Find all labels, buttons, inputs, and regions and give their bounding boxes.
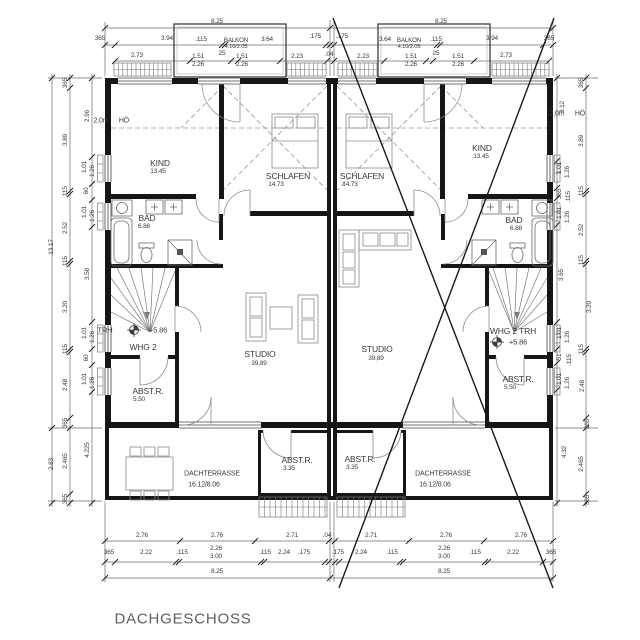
room-label-abstr-left: ABST.R. <box>132 387 163 396</box>
dim-label: 1.01 <box>557 207 564 219</box>
dim-label: 3.64 <box>379 37 391 44</box>
dim-label: .175 <box>298 550 310 557</box>
dim-label: 2.22 <box>507 550 519 557</box>
room-label-terrace-left: DACHTERRASSE <box>184 471 240 478</box>
dim-label: 3.89 <box>63 134 70 146</box>
room-area-studio-left: 39,89 <box>251 361 267 368</box>
height-line-label-left-2: HÖ <box>119 118 129 125</box>
room-label-terrace-abstr-left: ABST.R. <box>281 456 312 465</box>
dim-label: .175 <box>336 34 348 41</box>
dim-label: 2.26 <box>405 62 417 69</box>
dim-label: 365 <box>63 78 70 88</box>
room-label-studio-left: STUDIO <box>244 350 275 359</box>
dim-label: 51 <box>557 354 564 361</box>
dim-label: .115 <box>259 550 271 557</box>
dim-label: 1.26 <box>565 166 572 178</box>
dim-label: 1.01 <box>557 162 564 174</box>
dim-label: .115 <box>579 255 586 267</box>
bath-fixtures-left <box>111 200 192 266</box>
dim-label: 1.01 <box>82 327 89 339</box>
dim-label: 2.83 <box>49 458 56 470</box>
dim-label: 365 <box>585 495 592 505</box>
dim-label: 25 <box>433 51 440 58</box>
dim-label: 2.465 <box>63 453 70 469</box>
dim-label: .115 <box>63 256 70 268</box>
dim-label: 1.26 <box>90 331 97 343</box>
dim-label: .115 <box>566 191 573 203</box>
dim-label: .115 <box>176 550 188 557</box>
dim-label: 2.26 <box>438 546 450 553</box>
level-value-left: +5.86 <box>149 326 167 334</box>
level-marks <box>127 323 504 349</box>
dim-label: 2.48 <box>580 380 587 392</box>
dim-label: 2.73 <box>131 53 143 60</box>
door-swings <box>140 84 524 458</box>
dim-label: 2.24 <box>355 550 367 557</box>
apartment-label-right: WHG 2 TRH <box>490 327 536 336</box>
dim-label: 365 <box>544 36 554 43</box>
dim-label: 3.00 <box>438 554 450 561</box>
room-area-terrace-abstr-right: 3.35 <box>346 465 358 472</box>
dim-label: 1.26 <box>565 331 572 343</box>
floor-plan-drawing <box>0 0 640 640</box>
dim-label: .115 <box>195 37 207 44</box>
dim-label: .115 <box>430 37 442 44</box>
room-area-bad-left: 6.88 <box>138 224 150 231</box>
dim-label: 13.17 <box>49 239 56 255</box>
dim-label: 8.25 <box>211 569 223 576</box>
room-area-schlafen-left: 14.73 <box>268 182 284 189</box>
room-label-kind-right: KIND <box>472 144 492 153</box>
dim-label: 365 <box>63 494 70 504</box>
dim-label: 1.26 <box>565 211 572 223</box>
room-area-abstr-right: 5.50 <box>504 385 516 392</box>
dim-label: 3.89 <box>579 135 586 147</box>
room-label-terrace-right: DACHTERRASSE <box>415 471 471 478</box>
dim-label: .115 <box>63 344 70 356</box>
room-area-schlafen-right: 14.73 <box>342 182 358 189</box>
dim-label: 3.58 <box>85 268 92 280</box>
dim-label: 365 <box>95 36 105 43</box>
height-line-label-left: 2.0m <box>94 118 109 125</box>
dim-label: 3.94 <box>486 36 498 43</box>
room-label-kind-left: KIND <box>150 159 170 168</box>
level-value-right: +5.86 <box>509 338 527 346</box>
dim-label: .115 <box>579 344 586 356</box>
dim-label: .115 <box>386 550 398 557</box>
dim-label: 2.465 <box>579 456 586 472</box>
dim-label: 2.22 <box>140 550 152 557</box>
dim-label: 2.76 <box>211 533 223 540</box>
room-area-abstr-left: 5.50 <box>133 397 145 404</box>
dim-label: 1.01 <box>557 327 564 339</box>
dim-label: 2.76 <box>515 533 527 540</box>
dim-label: 2.76 <box>440 533 452 540</box>
dim-label: .04 <box>325 52 334 59</box>
dim-label: 1.51 <box>452 54 464 61</box>
dim-label: 1.01 <box>82 206 89 218</box>
apartment-label-left: WHG 2 <box>129 343 156 352</box>
dim-label: 60 <box>84 188 91 195</box>
room-area-kind-right: 13.45 <box>473 154 489 161</box>
room-label-bad-right: BAD <box>505 216 522 225</box>
bath-fixtures-right <box>472 200 553 266</box>
dim-label: 2.23 <box>291 54 303 61</box>
dim-label: 1.01 <box>557 373 564 385</box>
drawing-title: DACHGESCHOSS <box>114 611 251 628</box>
dim-label: 3.64 <box>261 37 273 44</box>
dim-label: 365 <box>546 550 556 557</box>
dim-label: 2.96 <box>85 110 92 122</box>
room-area-studio-right: 39,89 <box>368 356 384 363</box>
dim-label: 1.26 <box>565 377 572 389</box>
room-label-abstr-right: ABST.R. <box>502 375 533 384</box>
dim-label: 1.26 <box>90 210 97 222</box>
room-label-studio-right: STUDIO <box>361 345 392 354</box>
dim-label: 3.94 <box>161 36 173 43</box>
dim-label: 2.48 <box>63 379 70 391</box>
room-area-terrace-abstr-left: 3.35 <box>283 466 295 473</box>
dim-label: 3.65 <box>559 269 566 281</box>
room-area-bad-right: 6.88 <box>510 226 522 233</box>
dim-label: 2.52 <box>579 224 586 236</box>
floor-plan-sheet: 8.258.253653.94.115BALKON4.10/2.053.64.1… <box>0 0 640 640</box>
dim-label: .175 <box>309 34 321 41</box>
dim-label: 3.00 <box>210 554 222 561</box>
dim-label: 2.26 <box>452 62 464 69</box>
dim-label: 8.25 <box>211 19 223 26</box>
dim-label: .115 <box>579 186 586 198</box>
dim-label: 3.12 <box>560 101 567 113</box>
dim-label: 2.52 <box>63 222 70 234</box>
dim-label: 365 <box>63 418 70 428</box>
hatch-grids <box>114 63 549 517</box>
stair-direction-arrows <box>144 312 520 320</box>
dim-label: 3.20 <box>63 301 70 313</box>
dim-label: 8.25 <box>435 19 447 26</box>
dim-label: 8.25 <box>438 569 450 576</box>
room-label-schlafen-left: SCHLAFEN <box>266 172 310 181</box>
room-area-terrace-right: 16.12/8.06 <box>419 482 451 489</box>
dim-label: 2.73 <box>500 53 512 60</box>
floor-plan: 8.258.253653.94.115BALKON4.10/2.053.64.1… <box>0 0 640 640</box>
dim-label: .115 <box>567 354 574 366</box>
dim-label: 2.26 <box>210 546 222 553</box>
room-label-schlafen-right: SCHLAFEN <box>340 172 384 181</box>
dim-label: .115 <box>469 550 481 557</box>
dim-label: 1.01 <box>82 161 89 173</box>
dim-label: .04 <box>323 533 332 540</box>
dim-label: .175 <box>332 550 344 557</box>
dim-label: 3.20 <box>587 301 594 313</box>
stair-label-left: TRH <box>98 326 113 334</box>
walls <box>105 78 553 500</box>
dim-label: 365 <box>579 78 586 88</box>
dim-label: 25 <box>219 51 226 58</box>
dim-label: 1.51 <box>236 54 248 61</box>
dim-label: 365 <box>557 189 564 199</box>
dim-label: 2.71 <box>365 533 377 540</box>
room-label-terrace-abstr-right: ABST.R. <box>344 455 375 464</box>
dim-label: .115 <box>63 186 70 198</box>
room-area-kind-left: 13.45 <box>150 169 166 176</box>
dim-label: 2.76 <box>136 533 148 540</box>
balkon-size-right: 4.10/2.05 <box>398 45 421 51</box>
dim-label: 2.24 <box>278 550 290 557</box>
dim-label: 1.51 <box>405 54 417 61</box>
dim-label: 2.23 <box>357 54 369 61</box>
dim-label: 2.26 <box>192 62 204 69</box>
dim-label: 2.71 <box>286 533 298 540</box>
dim-label: 4.32 <box>562 446 569 458</box>
room-area-terrace-left: 16.12/8.06 <box>188 482 220 489</box>
dim-label: 60 <box>84 355 91 362</box>
dim-label: 1.26 <box>90 377 97 389</box>
height-line-label-right-2: HÖ <box>575 111 585 118</box>
dim-label: 1.51 <box>192 54 204 61</box>
dim-label: 1.26 <box>90 165 97 177</box>
room-label-bad-left: BAD <box>138 214 155 223</box>
dim-label: 4.225 <box>85 442 92 458</box>
dim-label: 1.01 <box>82 373 89 385</box>
dim-label: 365 <box>104 550 114 557</box>
dim-label: 2.26 <box>236 62 248 69</box>
balkon-size-left: 4.10/2.05 <box>225 45 248 51</box>
dim-label: 365 <box>585 419 592 429</box>
